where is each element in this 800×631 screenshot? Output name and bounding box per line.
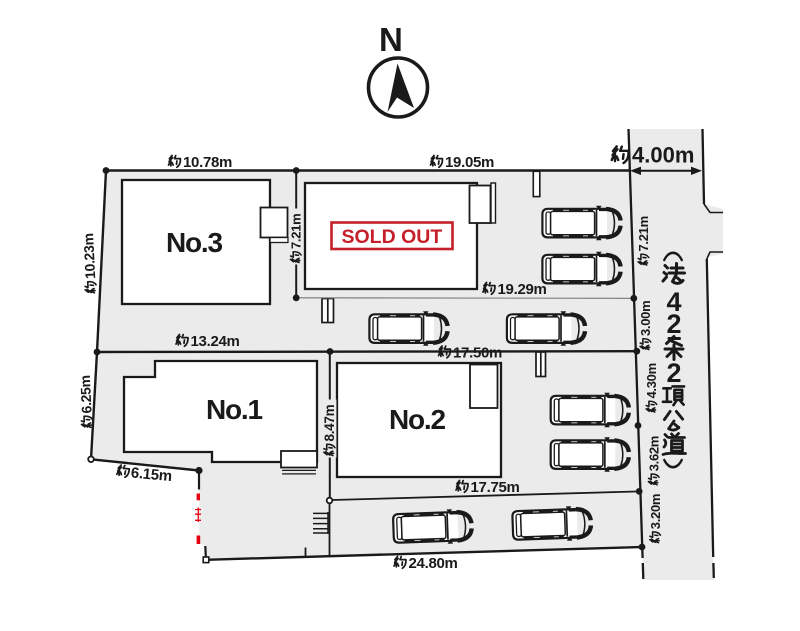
svg-text:3.20m: 3.20m xyxy=(648,494,663,529)
svg-text:4.00m: 4.00m xyxy=(632,143,694,168)
svg-text:17.50m: 17.50m xyxy=(453,344,502,361)
svg-text:6.25m: 6.25m xyxy=(77,375,95,414)
svg-text:SOLD OUT: SOLD OUT xyxy=(342,226,443,248)
svg-text:19.05m: 19.05m xyxy=(445,154,494,171)
svg-text:19.29m: 19.29m xyxy=(498,281,547,298)
svg-text:4.30m: 4.30m xyxy=(644,363,659,398)
svg-text:3.00m: 3.00m xyxy=(638,301,653,336)
svg-text:10.23m: 10.23m xyxy=(80,233,98,279)
svg-text:13.24m: 13.24m xyxy=(191,333,240,350)
svg-text:8.47m: 8.47m xyxy=(322,404,337,441)
svg-text:24.80m: 24.80m xyxy=(409,555,458,572)
svg-text:3.62m: 3.62m xyxy=(647,436,662,471)
svg-text:No.3: No.3 xyxy=(166,227,223,258)
svg-text:7.21m: 7.21m xyxy=(289,214,304,249)
svg-text:N: N xyxy=(379,21,402,58)
svg-text:7.21m: 7.21m xyxy=(636,216,651,251)
svg-text:2: 2 xyxy=(666,358,681,388)
svg-text:No.2: No.2 xyxy=(389,404,446,435)
svg-text:10.78m: 10.78m xyxy=(183,154,232,171)
svg-text:17.75m: 17.75m xyxy=(471,479,520,496)
svg-text:No.1: No.1 xyxy=(206,394,263,425)
svg-text:2: 2 xyxy=(666,309,681,339)
